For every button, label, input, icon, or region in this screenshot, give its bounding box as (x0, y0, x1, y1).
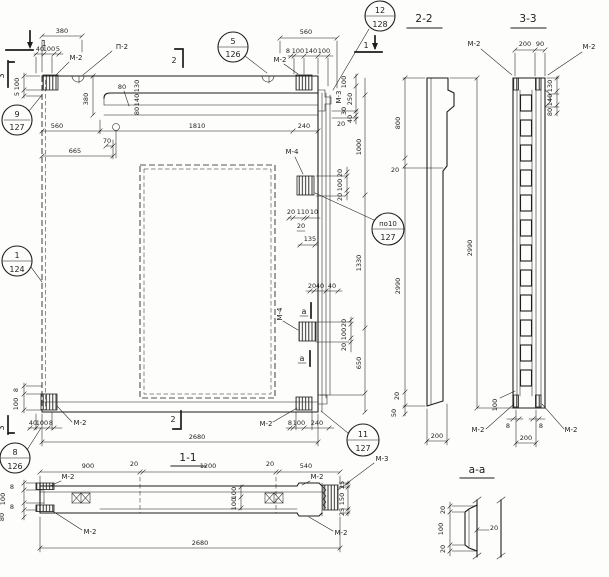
panel-outline (42, 76, 318, 412)
mark-m2-s11-t1: М-2 (61, 473, 74, 481)
end-flange-top (36, 483, 54, 490)
dim-100-s11-m2: 100 (230, 498, 238, 510)
dim-800-s22: 800 (394, 117, 402, 129)
dim-20-jamb-b: 20 (297, 222, 305, 230)
callout-11-num: 11 (358, 430, 368, 439)
callout-12-num: 12 (375, 6, 385, 15)
window-opening-inner (144, 169, 271, 394)
main-elevation-view (41, 75, 331, 412)
anchor-m2-bottom-right (296, 397, 312, 410)
dim-100-aa: 100 (437, 523, 445, 535)
mark-m3-right-edge: М-3 (335, 90, 343, 103)
dim-8-s33-r: 8 (539, 422, 543, 430)
dim-5-left-v: 5 (13, 92, 21, 96)
dim-100-r: 100 (340, 76, 348, 88)
dim-1810: 1810 (189, 122, 206, 130)
section-3-3-title: 3-3 (519, 13, 536, 25)
callout-po10-num: по10 (379, 220, 397, 228)
callout-8-ref: 126 (7, 462, 22, 471)
dim-110-jamb: 110 (297, 208, 309, 216)
dim-100-m4u: 100 (336, 179, 344, 191)
main-dimensions: 380 40 100 5 100 5 560 1810 240 380 665 … (12, 27, 367, 446)
callout-po10-ref: 127 (380, 233, 395, 242)
callout-1-ref: 124 (9, 265, 24, 274)
section-1-1-title: 1-1 (179, 452, 196, 464)
window-block-symbols (72, 493, 283, 503)
dim-2680-s11: 2680 (192, 539, 209, 547)
callout-8-num: 8 (12, 448, 17, 457)
dim-8-tr: 8 (286, 47, 290, 55)
void-ladder (521, 95, 532, 386)
callout-1-num: 1 (14, 251, 19, 260)
dim-100-br: 100 (293, 419, 305, 427)
dim-650: 650 (355, 357, 363, 369)
dim-90-s33: 90 (536, 40, 544, 48)
main-mark-labels: М-2 П-2 М-2 М-3 М-4 М-4 М-2 М-2 (56, 43, 343, 428)
anchor-m2-top-left (43, 75, 58, 90)
mark-m2-s11-t2: М-2 (310, 473, 323, 481)
cut-1-right: 1 (363, 41, 368, 50)
lifting-notches (72, 76, 274, 83)
mark-m4-lower: М-4 (276, 307, 284, 321)
dim-20-s22: 20 (391, 166, 399, 174)
anchor-m4-lower (299, 322, 316, 341)
dim-100-s11-m1: 100 (230, 487, 238, 499)
dim-380-top: 380 (56, 27, 68, 35)
anchor-m3-end-block (323, 485, 338, 510)
dim-1000: 1000 (355, 139, 363, 156)
dim-100-s11: 100 (0, 493, 7, 505)
panel-working-drawing: 380 40 100 5 100 5 560 1810 240 380 665 … (0, 0, 609, 577)
dim-8-br: 8 (288, 419, 292, 427)
dim-560-top: 560 (300, 28, 312, 36)
dim-240-br: 240 (311, 419, 323, 427)
callout-12-ref: 128 (372, 20, 387, 29)
callout-9-ref: 127 (9, 123, 24, 132)
dim-100-left-v: 100 (13, 78, 21, 90)
panel-right-layer-lines (322, 93, 330, 412)
dim-2990-s33: 2990 (466, 240, 474, 257)
end-flange-bottom (36, 505, 54, 512)
dim-10-jamb: 10 (310, 208, 318, 216)
detail-a-a-title: а-а (469, 464, 486, 476)
callout-9-num: 9 (14, 110, 19, 119)
section-3-3-profile (513, 78, 545, 408)
cut-3-top: 3 (0, 73, 6, 78)
section-2-2-title: 2-2 (415, 13, 432, 25)
mark-m4-upper: М-4 (285, 148, 299, 156)
dim-80-s11: 80 (0, 513, 6, 521)
callout-5-ref: 126 (225, 50, 240, 59)
dim-20-s22-bottom: 20 (393, 392, 401, 400)
dim-80-band-leader: 80 (118, 83, 126, 91)
mark-m2-s33-tl: М-2 (467, 40, 480, 48)
dim-20-aa-t: 20 (439, 506, 447, 514)
dim-200-s33-top: 200 (519, 40, 531, 48)
section-3-3: 3-3 200 90 М-2 М-2 130 140 80 8 8 100 М-… (450, 13, 596, 447)
anchor-m2-bottom-left (41, 394, 57, 410)
mark-m2-s11-b2: М-2 (334, 529, 347, 537)
dim-5-tl: 5 (56, 45, 60, 53)
drawing-sheet: 380 40 100 5 100 5 560 1810 240 380 665 … (0, 0, 609, 577)
dim-130-band: 130 (133, 80, 141, 92)
dim-250-r: 250 (346, 93, 354, 105)
dim-8-bl-v: 8 (12, 388, 20, 392)
dim-380-vert: 380 (82, 93, 90, 105)
dim-8-bl: 8 (49, 419, 53, 427)
callout-11-ref: 127 (355, 444, 370, 453)
dim-30-r: 30 (340, 107, 348, 115)
dim-20-m4u-b: 20 (336, 193, 344, 201)
dim-665: 665 (69, 147, 81, 155)
dim-150-s11: 150 (338, 493, 346, 505)
dim-20-aa-inner: 20 (490, 524, 498, 532)
dim-2990-s22: 2990 (394, 278, 402, 295)
dim-100-s33: 100 (491, 399, 499, 411)
dim-140-s33: 140 (546, 94, 554, 106)
dim-100-bl-v: 100 (12, 398, 20, 410)
dim-8-s11-b: 8 (10, 503, 14, 511)
dim-20-aa-b: 20 (439, 545, 447, 553)
detail-a-a: а-а 20 100 20 20 (437, 464, 505, 559)
dim-8-s11-t: 8 (10, 483, 14, 491)
dim-240-top: 240 (298, 122, 310, 130)
dim-2680-main: 2680 (189, 433, 206, 441)
dim-8-s33-l: 8 (506, 422, 510, 430)
mark-m2-s11-b1: М-2 (83, 528, 96, 536)
callout-5-num: 5 (230, 37, 235, 46)
section-1-1: 1-1 900 20 1200 20 540 8 100 8 80 100 10… (0, 452, 389, 552)
window-opening (140, 165, 275, 398)
dim-1330: 1330 (355, 255, 363, 272)
mark-m2-top-left: М-2 (69, 54, 82, 62)
hole-symbol (113, 124, 120, 131)
cut-3-bottom: 3 (0, 425, 6, 430)
anchor-m4-upper (297, 176, 314, 195)
mark-m2-top-right: М-2 (273, 56, 286, 64)
dim-80-s33: 80 (546, 108, 554, 116)
cut-a-top: а (302, 307, 307, 316)
mark-m2-bottom-left: М-2 (73, 419, 86, 427)
mark-p2: П-2 (116, 43, 128, 51)
dim-200-s33-bottom: 200 (520, 434, 532, 442)
mark-m2-bottom-right: М-2 (259, 420, 272, 428)
dim-20-jamb-a: 20 (287, 208, 295, 216)
dim-100-tr2: 100 (318, 47, 330, 55)
mark-m3-s11: М-3 (375, 455, 388, 463)
dim-100-tr1: 100 (292, 47, 304, 55)
cut-2-top: 2 (171, 56, 176, 65)
dim-900: 900 (82, 462, 94, 470)
dim-140-band: 140 (133, 94, 141, 106)
dim-20-m4l-a: 20 (340, 319, 348, 327)
section-cut-marks: 1 1 2 2 3 3 а а (0, 31, 382, 434)
dim-70: 70 (103, 137, 111, 145)
mark-m2-s33-bl: М-2 (471, 426, 484, 434)
dim-140-tr: 140 (305, 47, 317, 55)
dim-100-m4l: 100 (340, 328, 348, 340)
dim-80-band: 80 (133, 107, 141, 115)
dim-560-left: 560 (51, 122, 63, 130)
dim-20-m4u-a: 20 (336, 169, 344, 177)
dim-25-s11-b: 25 (338, 508, 346, 516)
cut-1-left: 1 (41, 39, 46, 48)
dim-40-r: 40 (346, 115, 354, 123)
dim-20-s11-b: 20 (266, 460, 274, 468)
m3-step-profile (318, 90, 331, 111)
dim-50-s22: 50 (390, 409, 398, 417)
dim-40-kb: 40 (328, 282, 336, 290)
dim-200-s22: 200 (431, 432, 443, 440)
mark-m2-s33-tr: М-2 (582, 43, 595, 51)
cut-2-bottom: 2 (170, 415, 175, 424)
dim-135-jamb: 135 (304, 235, 316, 243)
dim-40-ka: 40 (316, 282, 324, 290)
dim-1200: 1200 (200, 462, 217, 470)
mark-m2-s33-br: М-2 (564, 426, 577, 434)
dim-20-r: 20 (337, 120, 345, 128)
bottom-right-step (318, 395, 327, 404)
dim-540: 540 (300, 462, 312, 470)
anchor-m2-top-right (296, 75, 312, 90)
cut-a-bottom: а (300, 354, 305, 363)
dim-130-s33: 130 (546, 80, 554, 92)
dim-20-s11-a: 20 (130, 460, 138, 468)
dim-20-m4l-b: 20 (340, 343, 348, 351)
